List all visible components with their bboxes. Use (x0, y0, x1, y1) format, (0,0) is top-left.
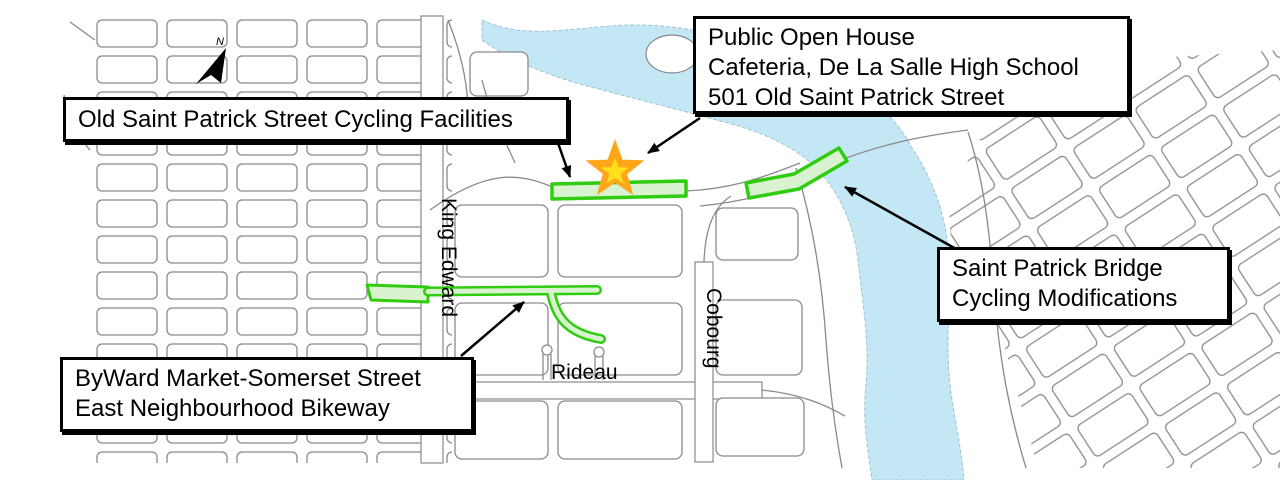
bikeway-wide-segment (367, 285, 428, 302)
map-canvas: Old Saint Patrick Street Cycling Facilit… (0, 0, 1280, 480)
callout-line: Public Open House (708, 23, 1115, 53)
callout-line: ByWard Market-Somerset Street (75, 364, 459, 394)
callout-old-saint-patrick: Old Saint Patrick Street Cycling Facilit… (63, 97, 569, 142)
arrow-to-old-saint-patrick (558, 143, 570, 177)
street-label-king-edward: King Edward (438, 198, 459, 317)
street-label-rideau: Rideau (551, 362, 618, 383)
callout-saint-patrick-bridge: Saint Patrick Bridge Cycling Modificatio… (937, 247, 1230, 322)
rideau-street (466, 382, 762, 399)
callout-line: Saint Patrick Bridge (952, 254, 1215, 284)
street-label-cobourg: Cobourg (703, 288, 724, 369)
arrow-to-star (648, 118, 700, 153)
north-arrow-label: N (216, 36, 224, 48)
callout-byward-bikeway: ByWard Market-Somerset Street East Neigh… (60, 357, 474, 432)
callout-line: 501 Old Saint Patrick Street (708, 83, 1115, 113)
callout-line: Old Saint Patrick Street Cycling Facilit… (78, 105, 513, 135)
river-island (646, 35, 698, 73)
callout-line: Cycling Modifications (952, 284, 1215, 314)
callout-public-open-house: Public Open House Cafeteria, De La Salle… (693, 16, 1130, 114)
callout-line: East Neighbourhood Bikeway (75, 394, 459, 424)
callout-line: Cafeteria, De La Salle High School (708, 53, 1115, 83)
